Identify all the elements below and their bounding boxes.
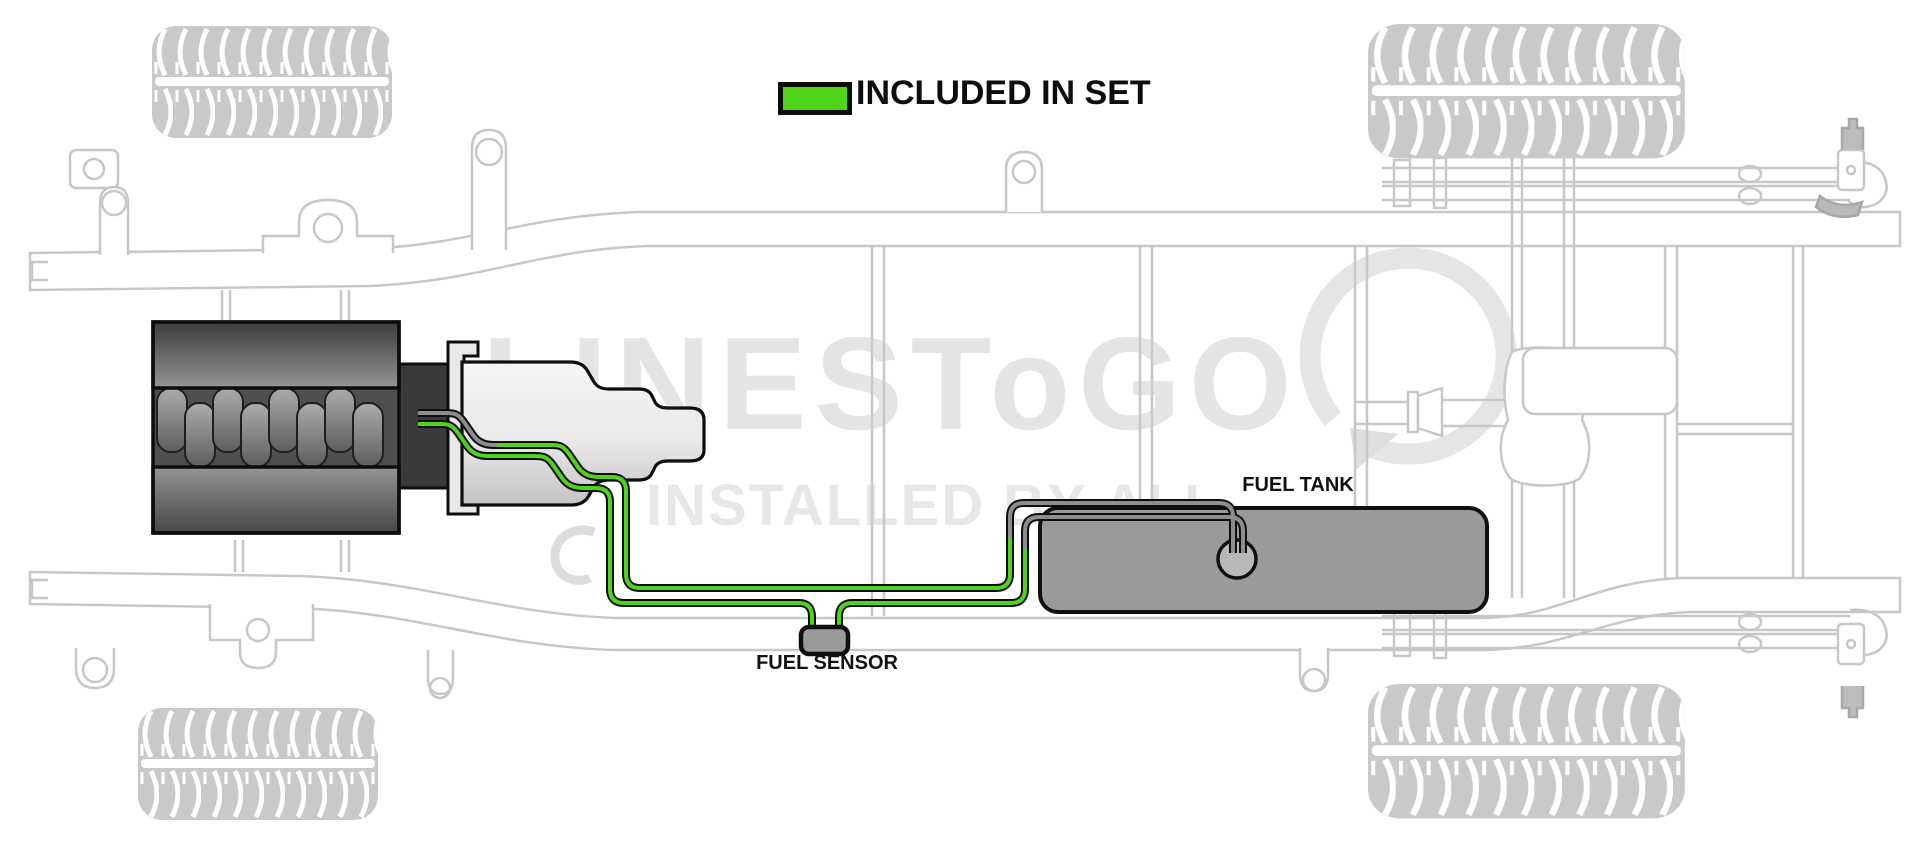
valve-cover-right (153, 467, 399, 533)
fuel-sensor (801, 627, 848, 654)
engine-block (153, 322, 449, 533)
fuel-line-diagram: LINESToGO INSTALLED BY ALL (0, 0, 1930, 841)
fuel-tank-label: FUEL TANK (1228, 474, 1368, 497)
legend: INCLUDED IN SET (778, 82, 852, 115)
fuel-system-art (0, 0, 1930, 841)
valve-cover-left (153, 322, 399, 388)
fuel-sensor-label: FUEL SENSOR (752, 652, 902, 675)
legend-swatch-icon (778, 82, 852, 115)
fuel-tank (1040, 508, 1487, 612)
legend-label: INCLUDED IN SET (856, 74, 1151, 113)
